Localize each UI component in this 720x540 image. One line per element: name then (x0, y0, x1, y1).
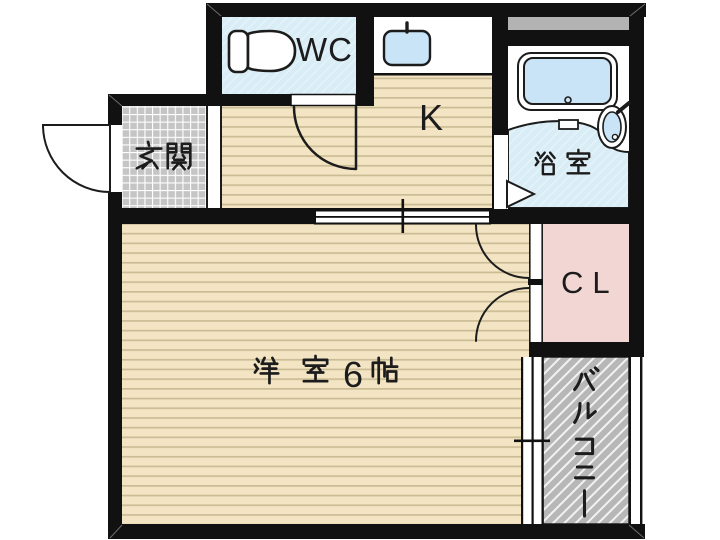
svg-text:CL: CL (561, 265, 619, 300)
svg-text:WC: WC (296, 31, 353, 68)
svg-text:6: 6 (343, 354, 363, 395)
svg-text:K: K (419, 97, 443, 138)
